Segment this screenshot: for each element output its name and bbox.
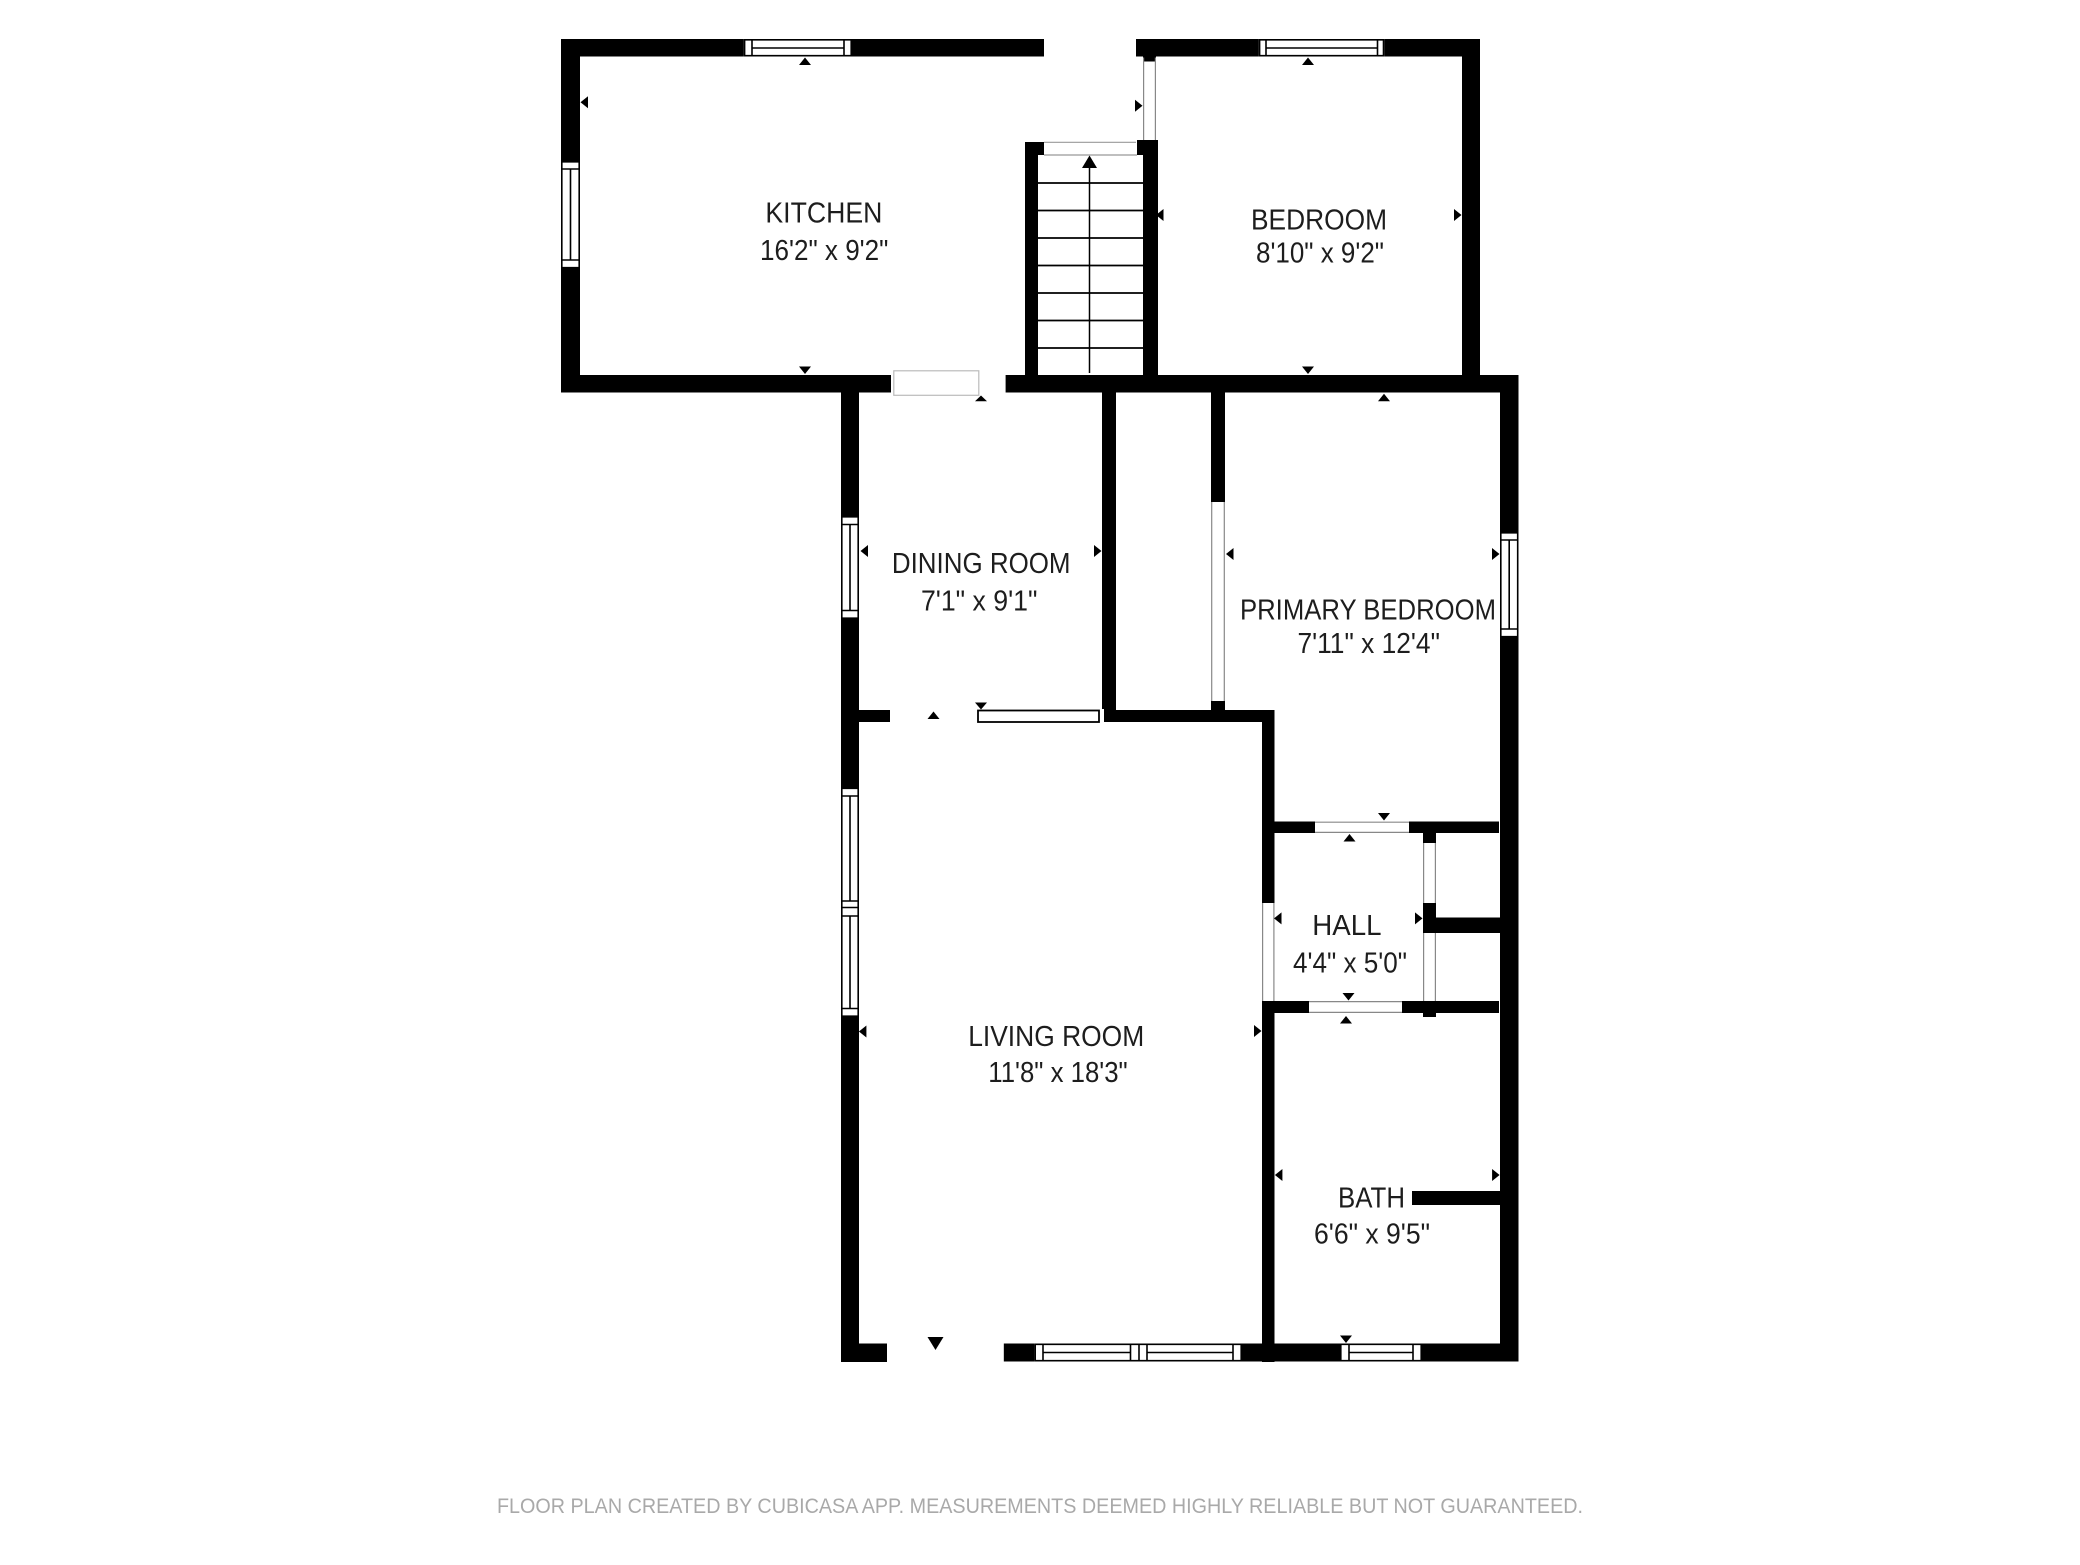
- svg-text:BATH: BATH: [1338, 1183, 1405, 1215]
- svg-text:16'2" x 9'2": 16'2" x 9'2": [760, 235, 888, 267]
- svg-text:8'10" x 9'2": 8'10" x 9'2": [1256, 238, 1384, 270]
- svg-text:FLOOR PLAN CREATED BY CUBICASA: FLOOR PLAN CREATED BY CUBICASA APP. MEAS…: [497, 1494, 1583, 1518]
- svg-text:LIVING ROOM: LIVING ROOM: [968, 1021, 1144, 1053]
- svg-text:7'1" x 9'1": 7'1" x 9'1": [921, 586, 1038, 618]
- svg-text:4'4" x 5'0": 4'4" x 5'0": [1293, 948, 1407, 980]
- svg-text:11'8" x 18'3": 11'8" x 18'3": [988, 1057, 1127, 1089]
- svg-text:KITCHEN: KITCHEN: [765, 198, 882, 230]
- svg-text:BEDROOM: BEDROOM: [1251, 205, 1387, 237]
- svg-text:HALL: HALL: [1312, 910, 1381, 942]
- svg-text:DINING ROOM: DINING ROOM: [892, 548, 1071, 580]
- svg-text:6'6" x 9'5": 6'6" x 9'5": [1314, 1219, 1430, 1251]
- svg-text:7'11" x 12'4": 7'11" x 12'4": [1297, 628, 1440, 660]
- svg-text:PRIMARY BEDROOM: PRIMARY BEDROOM: [1240, 595, 1496, 627]
